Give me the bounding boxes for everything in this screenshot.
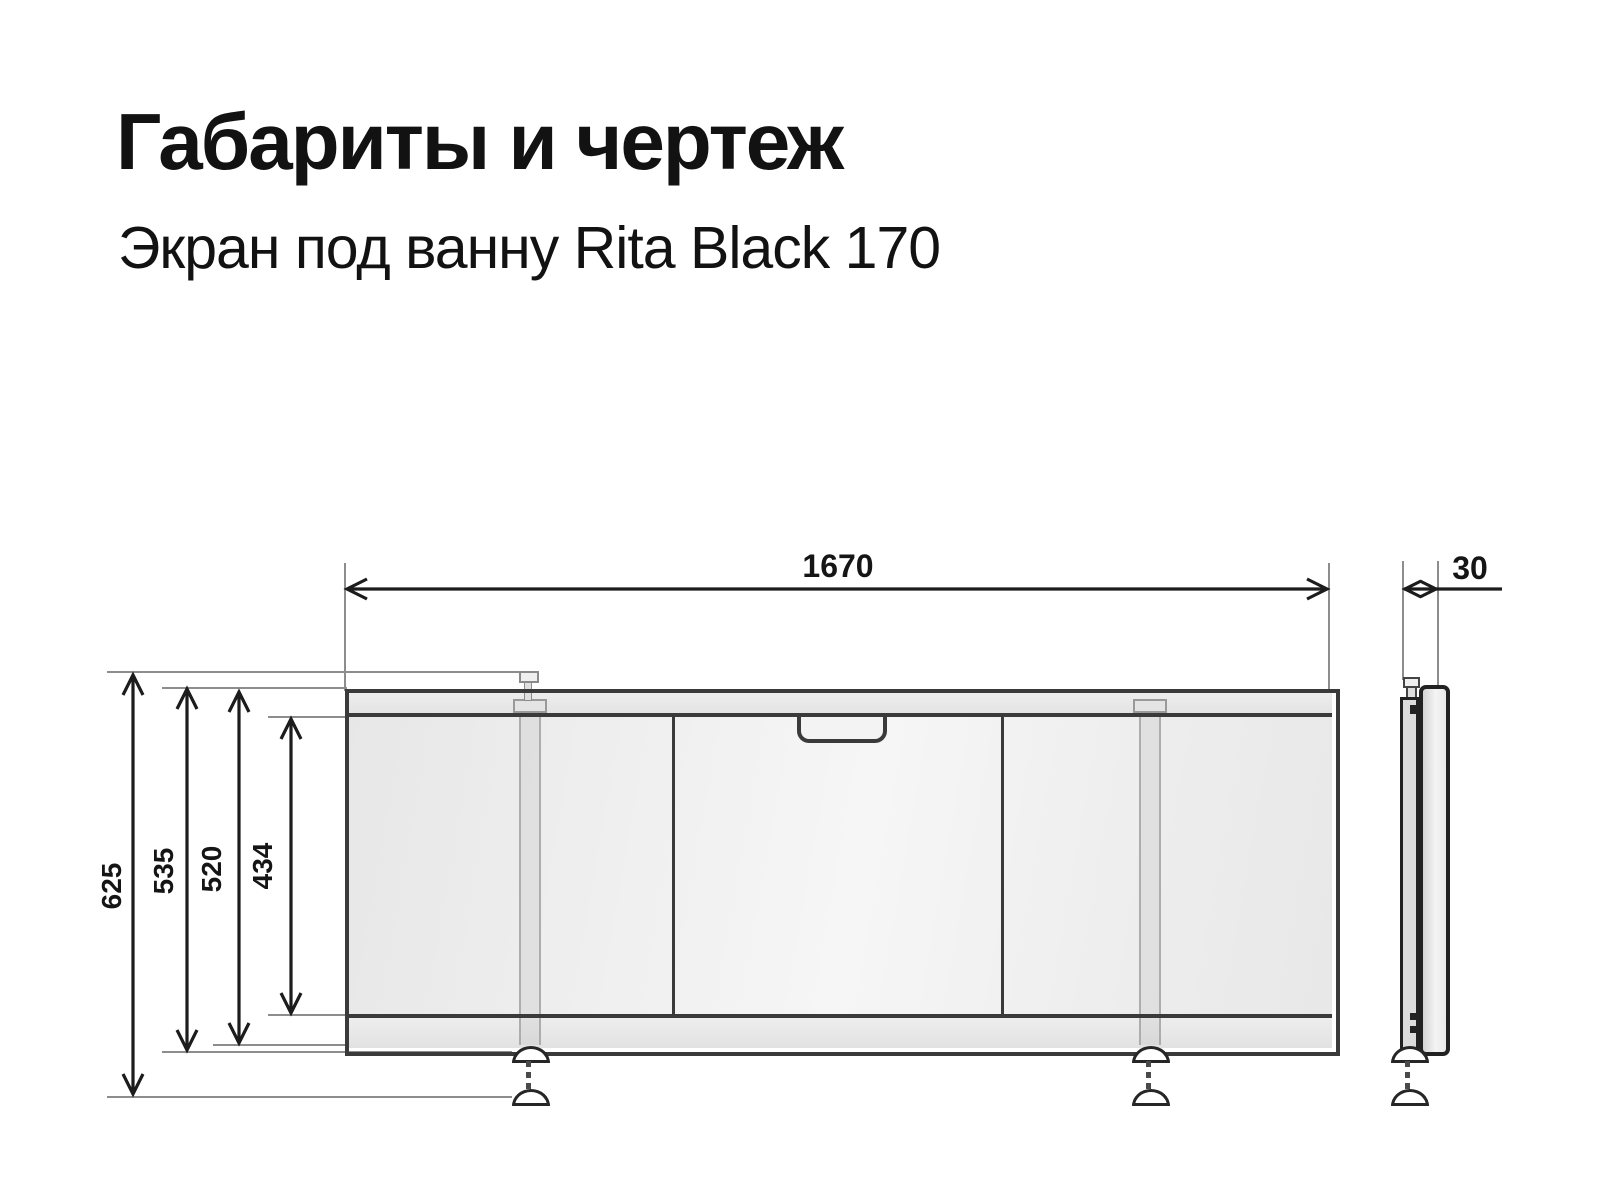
page: Габариты и чертеж Экран под ванну Rita B…: [0, 0, 1600, 1200]
page-subtitle: Экран под ванну Rita Black 170: [118, 214, 940, 282]
ext-line-top-535-520: [162, 687, 347, 689]
ext-line-width-left: [344, 563, 346, 691]
dim-label-height-with-foot: 535: [149, 821, 179, 921]
front-right-foot-dash: [1146, 1072, 1151, 1078]
side-connector-bottom-1: [1410, 1013, 1422, 1020]
side-leg: [1400, 697, 1419, 1051]
dim-height-screen: [229, 692, 249, 1043]
front-left-foot-dash: [526, 1061, 531, 1067]
side-foot-dash: [1405, 1061, 1410, 1067]
front-left-foot-extended: [512, 1089, 550, 1106]
side-connector-bottom-2: [1410, 1026, 1422, 1033]
side-foot-extended: [1391, 1089, 1429, 1106]
dim-height-with-foot: [177, 689, 197, 1050]
ext-line-depth-left: [1402, 561, 1404, 680]
dim-height-panel: [281, 719, 301, 1013]
ext-line-bottom-434: [268, 1014, 348, 1016]
ext-line-bottom-625: [107, 1096, 512, 1098]
page-title: Габариты и чертеж: [116, 96, 842, 188]
front-right-foot-dash: [1146, 1061, 1151, 1067]
front-left-leg-screw-cap: [519, 671, 539, 683]
front-right-foot-extended: [1132, 1089, 1170, 1106]
ext-line-width-right: [1328, 563, 1330, 691]
side-screw-cap: [1403, 677, 1420, 688]
side-foot-dash: [1405, 1072, 1410, 1078]
dim-label-height-total: 625: [97, 836, 127, 936]
ext-line-bottom-520: [213, 1044, 347, 1046]
dim-label-height-panel: 434: [248, 816, 278, 916]
front-outline: [345, 689, 1340, 1056]
ext-line-top-625: [107, 671, 519, 673]
dim-label-depth: 30: [1430, 550, 1510, 587]
ext-line-top-434: [268, 716, 348, 718]
dim-label-height-screen: 520: [197, 819, 227, 919]
front-left-foot-dash: [526, 1072, 531, 1078]
side-connector-top: [1410, 705, 1422, 714]
dim-label-width: 1670: [758, 548, 918, 585]
side-panel: [1419, 685, 1450, 1056]
